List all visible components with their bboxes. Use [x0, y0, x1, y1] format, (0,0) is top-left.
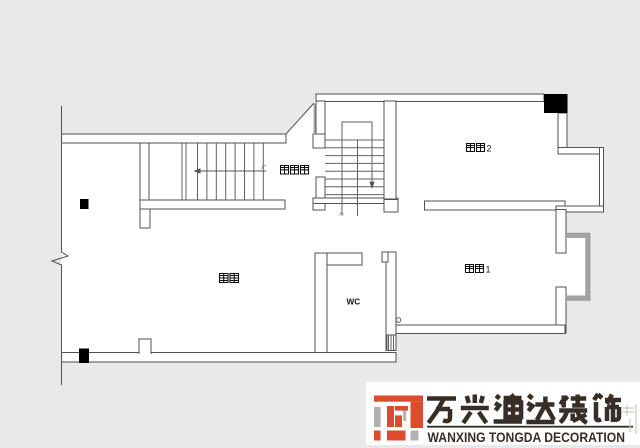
svg-text:WC: WC	[347, 298, 361, 307]
svg-text:1: 1	[486, 265, 491, 275]
svg-text:2: 2	[487, 144, 492, 154]
svg-text:WANXING TONGDA DECORATION: WANXING TONGDA DECORATION	[428, 430, 626, 445]
